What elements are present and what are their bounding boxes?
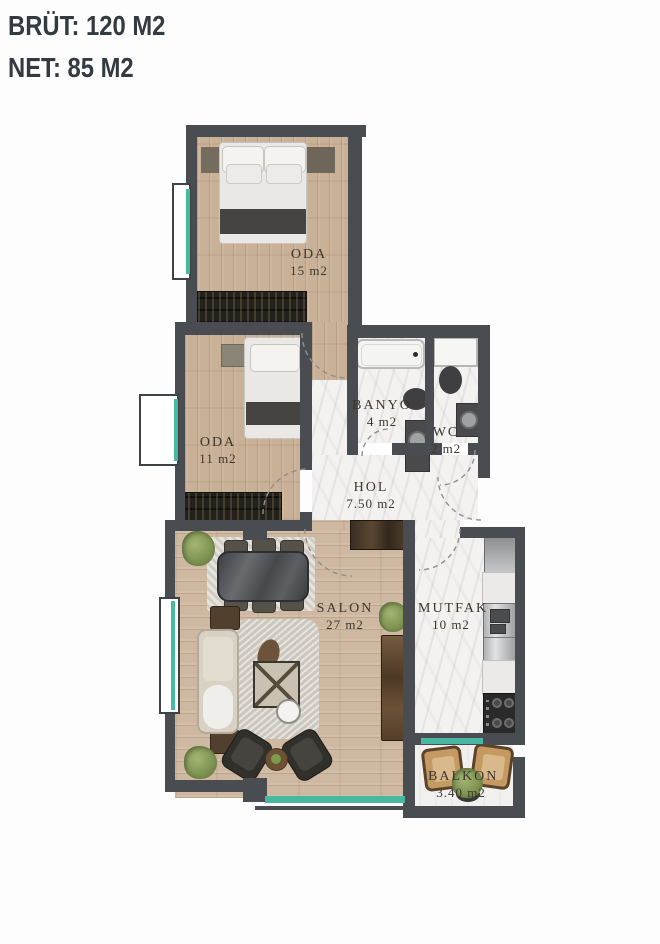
room-label-balkon: BALKON 3.40 m2: [428, 768, 494, 801]
plant-icon: [184, 746, 217, 779]
cooktop-knobs-icon: [486, 700, 489, 726]
kitchen-counter-icon: [484, 537, 517, 574]
room-label-mutfak: MUTFAK 10 m2: [418, 600, 484, 633]
wall-right-oda15: [348, 125, 362, 338]
net-area-text: NET: 85 M2: [8, 52, 134, 84]
room-name: BALKON: [428, 768, 494, 785]
wall-salon-top: [165, 520, 302, 531]
drain-icon: [413, 352, 418, 357]
room-area: 27 m2: [315, 617, 375, 633]
fridge-dispenser-icon: [490, 609, 510, 623]
burner-icon: [504, 718, 514, 728]
cooktop-icon: [483, 693, 517, 736]
bathtub-icon: [356, 339, 425, 369]
sofa-icon: [197, 629, 239, 734]
cabinet-icon: [350, 520, 405, 550]
room-area: 4 m2: [350, 414, 414, 430]
window-frame: [139, 394, 179, 466]
sofa-throw-icon: [203, 685, 233, 729]
room-area: 3.40 m2: [428, 785, 494, 801]
washer-icon: [433, 337, 478, 367]
wall-salon-bottom-left: [165, 780, 245, 792]
side-table-icon: [265, 748, 288, 771]
room-label-banyo: BANYO 4 m2: [350, 397, 414, 430]
room-area: 7.50 m2: [340, 496, 402, 512]
wall-salon-kitchen: [403, 520, 415, 812]
room-area: 2 m2: [424, 441, 468, 457]
room-area: 15 m2: [279, 263, 339, 279]
single-bed-icon: [244, 337, 305, 439]
burner-icon: [504, 698, 514, 708]
room-name: SALON: [315, 600, 375, 617]
window-sill-line: [255, 806, 405, 810]
toilet-icon: [439, 366, 462, 394]
room-label-salon: SALON 27 m2: [315, 600, 375, 633]
gross-area-text: BRÜT: 120 M2: [8, 10, 165, 42]
room-name: ODA: [279, 246, 339, 263]
room-name: WC: [424, 424, 468, 441]
round-tray-icon: [276, 699, 301, 724]
pillow-icon: [266, 164, 302, 184]
room-label-wc: WC 2 m2: [424, 424, 468, 457]
room-label-oda11: ODA 11 m2: [188, 434, 248, 467]
wall-top: [186, 125, 366, 137]
room-name: BANYO: [350, 397, 414, 414]
blanket-icon: [220, 209, 306, 234]
room-area: 10 m2: [418, 617, 484, 633]
room-name: MUTFAK: [418, 600, 484, 617]
wall-oda-divider: [175, 322, 312, 335]
fridge-panel-icon: [490, 624, 506, 634]
pillow-icon: [226, 164, 262, 184]
kitchen-countertop-icon: [482, 660, 517, 695]
oda15-door-alcove-floor: [312, 322, 352, 382]
wall-banyo-bottom-stub: [347, 443, 358, 455]
double-bed-icon: [219, 142, 307, 244]
wall-right-upper: [478, 325, 490, 478]
room-area: 11 m2: [188, 451, 248, 467]
hall-strip-floor: [312, 380, 347, 455]
wall-right-oda11: [300, 335, 312, 470]
wall-balcony-bottom: [403, 806, 525, 818]
room-label-hol: HOL 7.50 m2: [340, 479, 402, 512]
room-name: ODA: [188, 434, 248, 451]
window-glass: [186, 189, 190, 274]
pillow-icon: [250, 344, 300, 372]
wardrobe-icon: [180, 492, 282, 523]
wall-kitchen-right: [515, 527, 525, 745]
wall-banyo-bottom: [392, 443, 425, 455]
burner-icon: [492, 698, 502, 708]
room-name: HOL: [340, 479, 402, 496]
wall-step-block: [243, 531, 267, 540]
balcony-door-glass: [421, 738, 483, 744]
fridge-icon: [483, 603, 517, 662]
end-table-icon: [210, 606, 240, 630]
blanket-icon: [246, 402, 303, 425]
small-plant-icon: [271, 754, 281, 764]
window-glass: [174, 399, 178, 461]
fridge-door-line: [484, 637, 516, 638]
window-glass-salon-south: [265, 796, 405, 803]
kitchen-doorway-floor: [415, 520, 460, 538]
plant-icon: [182, 531, 215, 566]
sofa-cushion-icon: [203, 637, 233, 681]
wall-step-block: [243, 778, 267, 802]
armchair-seat-icon: [288, 735, 325, 773]
window-glass: [171, 601, 175, 710]
window-frame: [159, 597, 180, 714]
wardrobe-icon: [197, 291, 307, 324]
dining-table-icon: [217, 551, 309, 602]
floor-plan-page: BRÜT: 120 M2 NET: 85 M2: [0, 0, 660, 944]
wall-balcony-right: [513, 757, 525, 813]
room-label-oda15: ODA 15 m2: [279, 246, 339, 279]
wall-banyo-top: [347, 325, 490, 338]
armchair-seat-icon: [229, 735, 266, 773]
burner-icon: [492, 718, 502, 728]
nightstand-icon: [307, 147, 335, 173]
